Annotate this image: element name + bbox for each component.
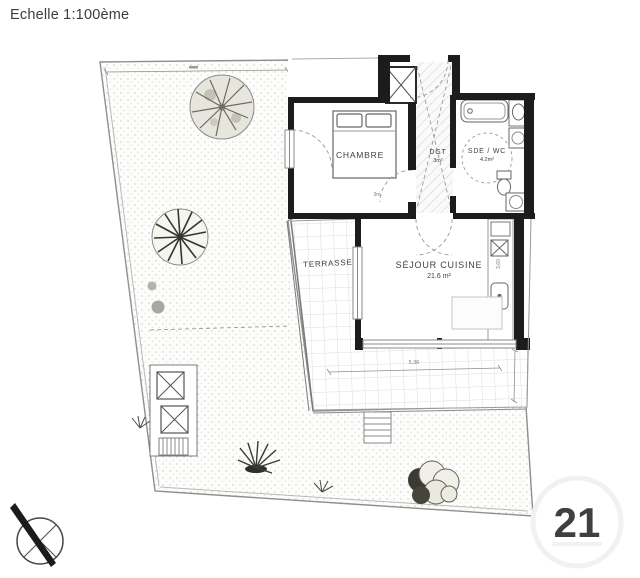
dimension-text-smudge — [189, 66, 198, 69]
compass-icon — [10, 503, 63, 567]
fridge-icon — [491, 222, 510, 236]
tree-large-icon — [190, 75, 254, 139]
watermark: 21 — [533, 478, 621, 566]
washing-machine-icon — [506, 193, 526, 211]
watermark-text: 21 — [554, 499, 601, 546]
shrub-icon — [152, 301, 165, 314]
light-wells — [150, 365, 197, 456]
bathtub-icon — [461, 100, 508, 122]
compass-needle — [10, 503, 56, 567]
floor-plan-drawing: 5,36 — [0, 0, 640, 578]
sde-wc-area: 4.2m² — [480, 157, 494, 163]
dgt-area: 3m² — [433, 158, 443, 164]
table-icon — [452, 297, 502, 329]
sejour-depth-dimension: 3,60 — [496, 259, 502, 269]
terrace-width-dimension: 5,36 — [409, 360, 420, 366]
stairs-icon — [364, 412, 391, 443]
chambre-dimension: 3m — [374, 192, 381, 198]
sejour-label: SÉJOUR CUISINE — [396, 260, 483, 270]
tree-palm-icon — [152, 209, 208, 265]
chambre-label: CHAMBRE — [336, 150, 384, 160]
floor-plan-page: Echelle 1:100ème — [0, 0, 640, 578]
shrub-icon — [148, 282, 157, 291]
plot-right-boundary — [527, 219, 531, 406]
toilet-icon — [497, 171, 511, 195]
hob-icon — [491, 240, 508, 256]
sejour-area: 21.6 m² — [427, 273, 451, 280]
dgt-label: DGT — [429, 149, 446, 156]
bed-icon — [333, 111, 396, 178]
sde-wc-label: SDE / WC — [468, 148, 506, 155]
